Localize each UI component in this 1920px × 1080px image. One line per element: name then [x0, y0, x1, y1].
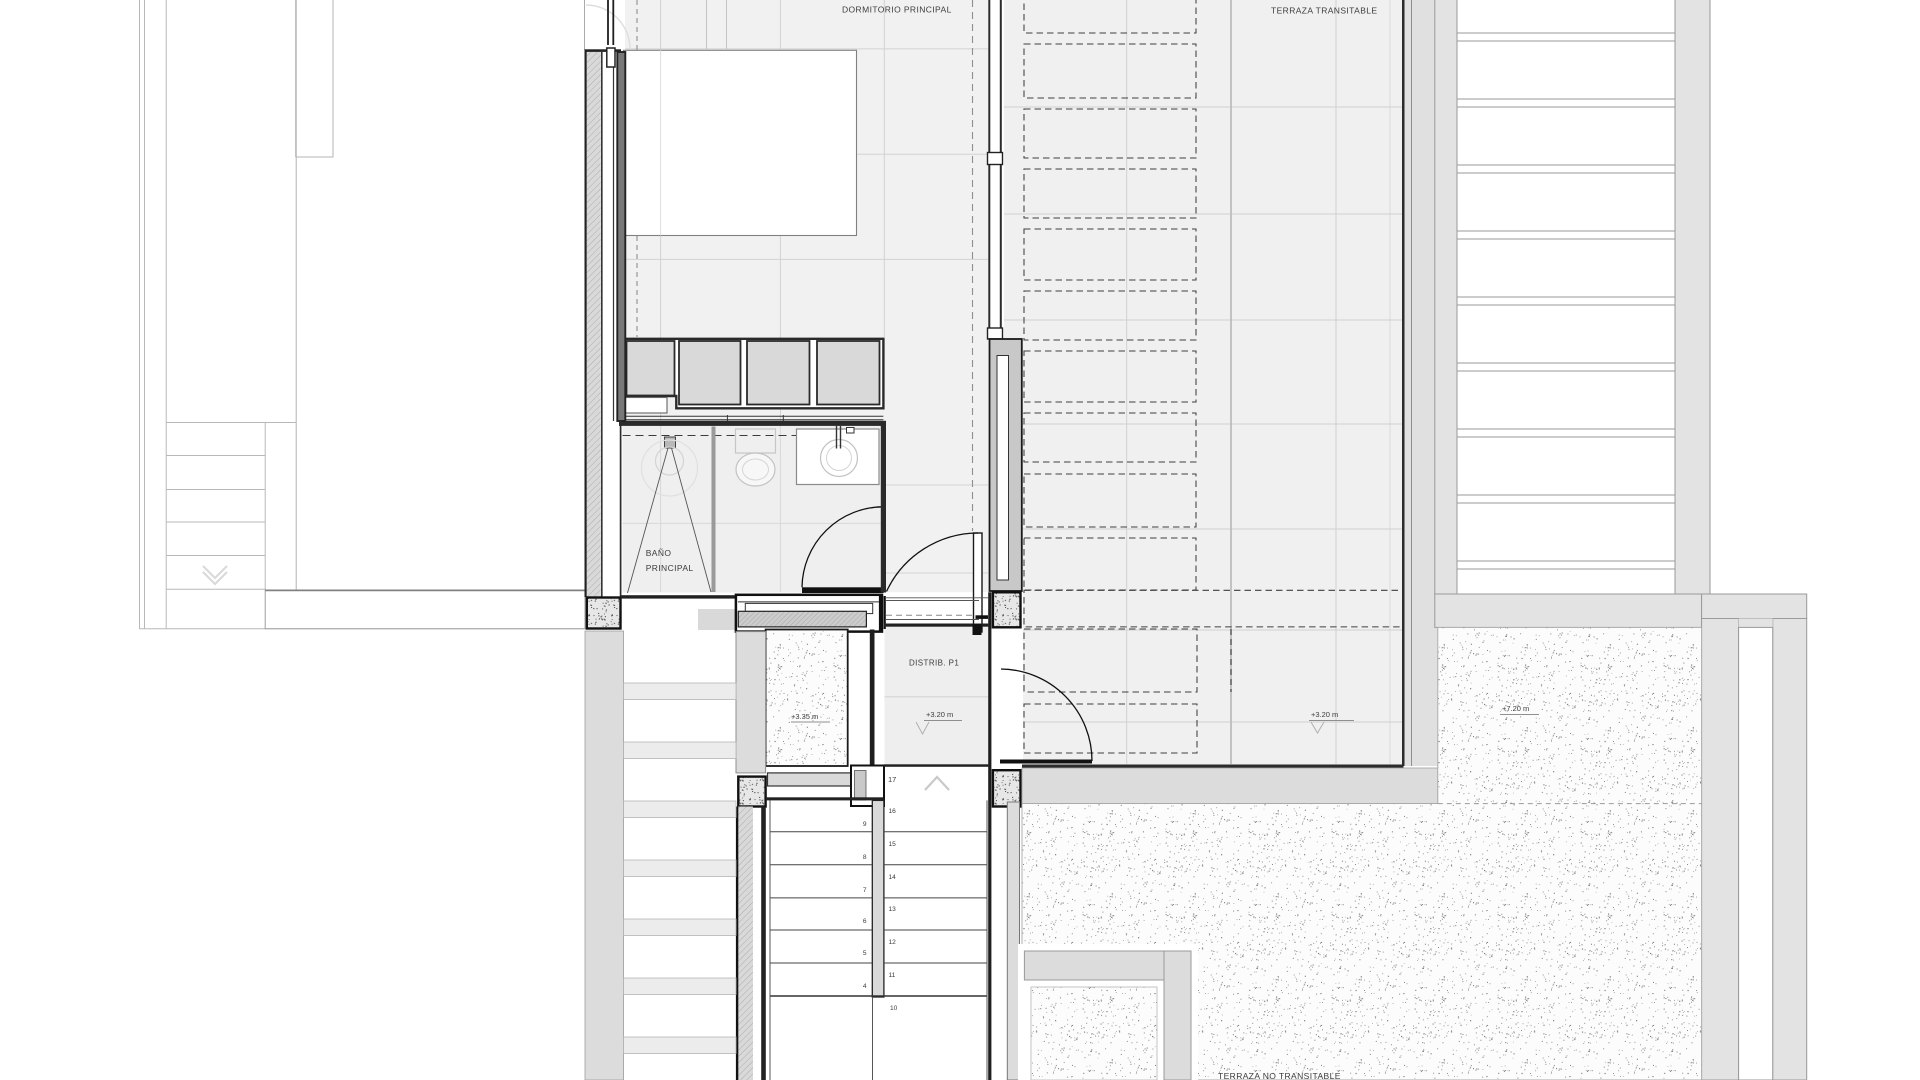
svg-text:9: 9	[863, 821, 867, 828]
svg-text:8: 8	[863, 854, 867, 861]
svg-text:11: 11	[889, 972, 896, 979]
svg-text:+7.20 m: +7.20 m	[1502, 704, 1529, 713]
svg-text:4: 4	[863, 983, 867, 990]
svg-text:16: 16	[889, 808, 897, 815]
svg-text:15: 15	[889, 841, 897, 848]
svg-text:BAÑO: BAÑO	[646, 548, 672, 558]
svg-text:10: 10	[890, 1005, 898, 1012]
svg-text:6: 6	[863, 918, 867, 925]
svg-text:14: 14	[889, 874, 897, 881]
svg-text:TERRAZA TRANSITABLE: TERRAZA TRANSITABLE	[1271, 6, 1377, 16]
svg-text:17: 17	[888, 775, 896, 784]
svg-text:5: 5	[863, 950, 867, 957]
svg-text:+3.35 m: +3.35 m	[791, 712, 818, 721]
svg-text:+3.20 m: +3.20 m	[926, 710, 953, 719]
svg-text:+3.20 m: +3.20 m	[1311, 710, 1338, 719]
svg-text:TERRAZA NO TRANSITABLE: TERRAZA NO TRANSITABLE	[1218, 1071, 1341, 1080]
svg-text:DISTRIB. P1: DISTRIB. P1	[909, 659, 959, 668]
svg-text:DORMITORIO PRINCIPAL: DORMITORIO PRINCIPAL	[842, 5, 952, 15]
svg-text:PRINCIPAL: PRINCIPAL	[646, 563, 694, 573]
svg-text:13: 13	[889, 906, 897, 913]
svg-text:12: 12	[889, 939, 897, 946]
svg-text:7: 7	[863, 887, 867, 894]
